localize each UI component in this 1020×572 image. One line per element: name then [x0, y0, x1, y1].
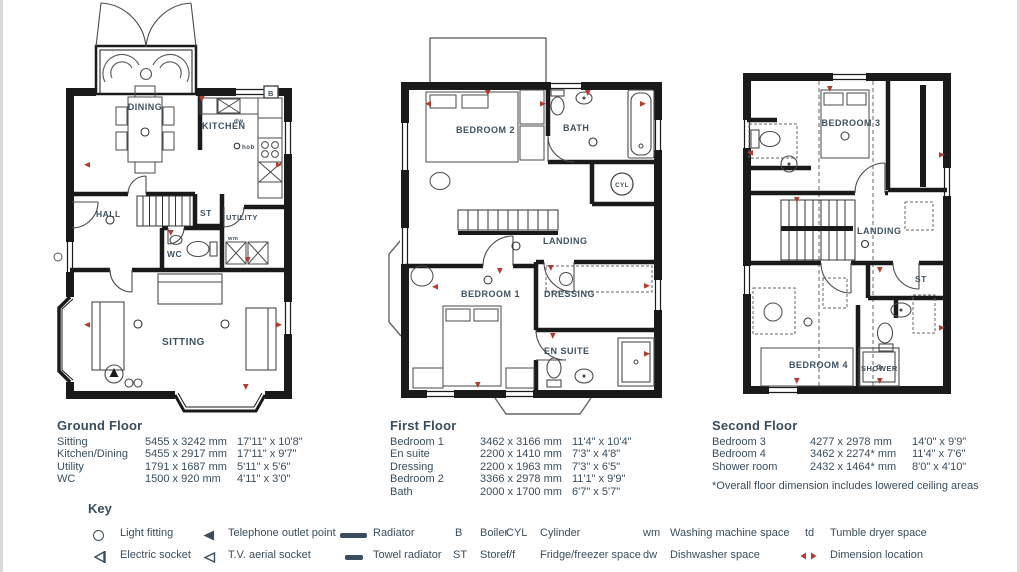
room-label-store: ST: [200, 208, 212, 218]
imperial-dimensions: 11'4" x 10'4": [572, 436, 632, 448]
room-label-dining: DINING: [128, 102, 163, 112]
imperial-dimensions: 11'1" x 9'9": [572, 473, 625, 485]
room-label-landing: LANDING: [857, 226, 902, 236]
room-name: Sitting: [57, 436, 145, 448]
room-label-hall: HALL: [96, 209, 121, 219]
first-floor-table: First Floor Bedroom 1 3462 x 3166 mm 11'…: [390, 418, 632, 498]
metric-dimensions: 5455 x 3242 mm: [145, 436, 237, 448]
key-abbr-dw: dw: [643, 549, 657, 561]
room-name: Bedroom 3: [712, 436, 810, 448]
key-label: Boiler: [480, 527, 508, 539]
key-label: Dishwasher space: [670, 549, 760, 561]
towel-radiator-icon: [345, 555, 363, 560]
metric-dimensions: 2200 x 1410 mm: [480, 448, 572, 460]
key-label: Fridge/freezer space: [540, 549, 641, 561]
metric-dimensions: 1500 x 920 mm: [145, 473, 237, 485]
key-label: Telephone outlet point: [228, 527, 336, 539]
key-abbr-store: ST: [453, 549, 467, 561]
electric-socket-icon: [93, 551, 107, 563]
room-name: Bath: [390, 486, 480, 498]
room-label-landing: LANDING: [543, 236, 588, 246]
table-row: Bedroom 1 3462 x 3166 mm 11'4" x 10'4": [390, 436, 632, 448]
annotation-hob: hob: [242, 144, 255, 151]
key-label: Cylinder: [540, 527, 580, 539]
bottom-bay-window: [175, 393, 265, 411]
table-title: Ground Floor: [57, 418, 303, 433]
room-label-bath: BATH: [563, 123, 589, 133]
second-floor-table: Second Floor Bedroom 3 4277 x 2978 mm 14…: [712, 418, 966, 473]
room-label-sitting: SITTING: [162, 337, 205, 348]
imperial-dimensions: 11'4" x 7'6": [912, 448, 965, 460]
table-row: Bedroom 3 4277 x 2978 mm 14'0" x 9'9": [712, 436, 966, 448]
key-label: Dimension location: [830, 549, 923, 561]
ground-floor-plan: DINING KITCHEN dw hob B HALL ST UTILITY …: [50, 2, 306, 416]
metric-dimensions: 2000 x 1700 mm: [480, 486, 572, 498]
room-label-ensuite: EN SUITE: [544, 346, 590, 356]
imperial-dimensions: 5'11" x 5'6": [237, 461, 290, 473]
room-name: Kitchen/Dining: [57, 448, 145, 460]
room-label-bedroom2: BEDROOM 2: [456, 125, 515, 135]
key-label: Washing machine space: [670, 527, 789, 539]
room-label-store: ST: [915, 274, 927, 284]
key-abbr-boiler: B: [455, 527, 462, 539]
tv-aerial-socket-icon: [203, 552, 216, 563]
table-row: Dressing 2200 x 1963 mm 7'3" x 6'5": [390, 461, 632, 473]
metric-dimensions: 1791 x 1687 mm: [145, 461, 237, 473]
key-title: Key: [88, 501, 112, 516]
metric-dimensions: 3462 x 3166 mm: [480, 436, 572, 448]
metric-dimensions: 2432 x 1464* mm: [810, 461, 912, 473]
bay-roof-outline-top: [430, 38, 546, 86]
room-label-utility: UTILITY: [226, 213, 258, 222]
room-label-shower: SHOWER: [861, 364, 898, 373]
sofas-icon: [92, 274, 276, 387]
imperial-dimensions: 6'7" x 5'7": [572, 486, 620, 498]
key-label: T.V. aerial socket: [228, 549, 311, 561]
telephone-outlet-icon: [202, 530, 215, 541]
key-abbr-td: td: [805, 527, 814, 539]
kitchen-units-icon: [200, 86, 282, 198]
key-label: Electric socket: [120, 549, 191, 561]
room-label-bedroom4: BEDROOM 4: [789, 360, 848, 370]
room-label-wc: WC: [167, 249, 182, 259]
imperial-dimensions: 8'0" x 4'10": [912, 461, 966, 473]
metric-dimensions: 5455 x 2917 mm: [145, 448, 237, 460]
bay-roof-outline-left: [389, 240, 401, 336]
room-label-bedroom3: BEDROOM 3: [821, 118, 880, 128]
room-name: Dressing: [390, 461, 480, 473]
table-row: WC 1500 x 920 mm 4'11" x 3'0": [57, 473, 303, 485]
imperial-dimensions: 4'11" x 3'0": [237, 473, 290, 485]
armchairs-icon: [103, 54, 189, 82]
floor-lamp-icon: [110, 368, 119, 377]
key-abbr-cylinder: CYL: [506, 527, 527, 539]
room-name: Shower room: [712, 461, 810, 473]
metric-dimensions: 2200 x 1963 mm: [480, 461, 572, 473]
first-floor-plan: BEDROOM 2 BATH CYL LANDING BEDROOM 1 DRE…: [388, 24, 666, 416]
room-label-bedroom1: BEDROOM 1: [461, 289, 520, 299]
label-cylinder: CYL: [615, 182, 629, 189]
key-label: Radiator: [373, 527, 415, 539]
french-doors-icon: [96, 3, 196, 47]
table-row: Bedroom 4 3462 x 2274* mm 11'4" x 7'6": [712, 448, 966, 460]
room-name: WC: [57, 473, 145, 485]
radiator-icon: [340, 533, 367, 538]
bay-roof-outline-bottom: [495, 398, 591, 414]
room-label-dressing: DRESSING: [544, 289, 595, 299]
floorplan-sheet: DINING KITCHEN dw hob B HALL ST UTILITY …: [0, 0, 1020, 572]
key-label: Towel radiator: [373, 549, 441, 561]
annotation-dw: dw: [234, 118, 244, 125]
metric-dimensions: 3366 x 2978 mm: [480, 473, 572, 485]
metric-dimensions: 4277 x 2978 mm: [810, 436, 912, 448]
key-label: Tumble dryer space: [830, 527, 927, 539]
table-row: Bedroom 2 3366 x 2978 mm 11'1" x 9'9": [390, 473, 632, 485]
sitting-bay-window: [59, 297, 73, 382]
table-title: First Floor: [390, 418, 632, 433]
table-row: Kitchen/Dining 5455 x 2917 mm 17'11" x 9…: [57, 448, 303, 460]
ground-floor-table: Ground Floor Sitting 5455 x 3242 mm 17'1…: [57, 418, 303, 486]
table-row: Shower room 2432 x 1464* mm 8'0" x 4'10": [712, 461, 966, 473]
table-row: Utility 1791 x 1687 mm 5'11" x 5'6": [57, 461, 303, 473]
room-name: En suite: [390, 448, 480, 460]
imperial-dimensions: 17'11" x 9'7": [237, 448, 297, 460]
room-name: Utility: [57, 461, 145, 473]
metric-dimensions: 3462 x 2274* mm: [810, 448, 912, 460]
key-abbr-ff: f/f: [506, 549, 515, 561]
second-floor-plan: BEDROOM 3 LANDING ST BEDROOM 4 SHOWER: [733, 60, 961, 394]
stairs-icon: [137, 196, 190, 226]
dining-table-icon: [116, 86, 174, 173]
key-label: Store: [480, 549, 506, 561]
table-row: En suite 2200 x 1410 mm 7'3" x 4'8": [390, 448, 632, 460]
imperial-dimensions: 14'0" x 9'9": [912, 436, 966, 448]
imperial-dimensions: 7'3" x 4'8": [572, 448, 620, 460]
annotation-wm: wm: [227, 236, 238, 242]
key-label: Light fitting: [120, 527, 173, 539]
room-name: Bedroom 4: [712, 448, 810, 460]
ceiling-footnote: *Overall floor dimension includes lowere…: [712, 480, 979, 492]
interior-walls: [70, 92, 288, 270]
light-fitting-icon: [93, 530, 104, 541]
table-row: Sitting 5455 x 3242 mm 17'11" x 10'8": [57, 436, 303, 448]
key-abbr-wm: wm: [643, 527, 660, 539]
table-row: Bath 2000 x 1700 mm 6'7" x 5'7": [390, 486, 632, 498]
left-edge-strip: [0, 0, 3, 572]
imperial-dimensions: 17'11" x 10'8": [237, 436, 303, 448]
room-name: Bedroom 1: [390, 436, 480, 448]
table-title: Second Floor: [712, 418, 966, 433]
dimension-location-icon: [800, 552, 817, 560]
imperial-dimensions: 7'3" x 6'5": [572, 461, 620, 473]
room-name: Bedroom 2: [390, 473, 480, 485]
annotation-boiler: B: [268, 89, 274, 98]
